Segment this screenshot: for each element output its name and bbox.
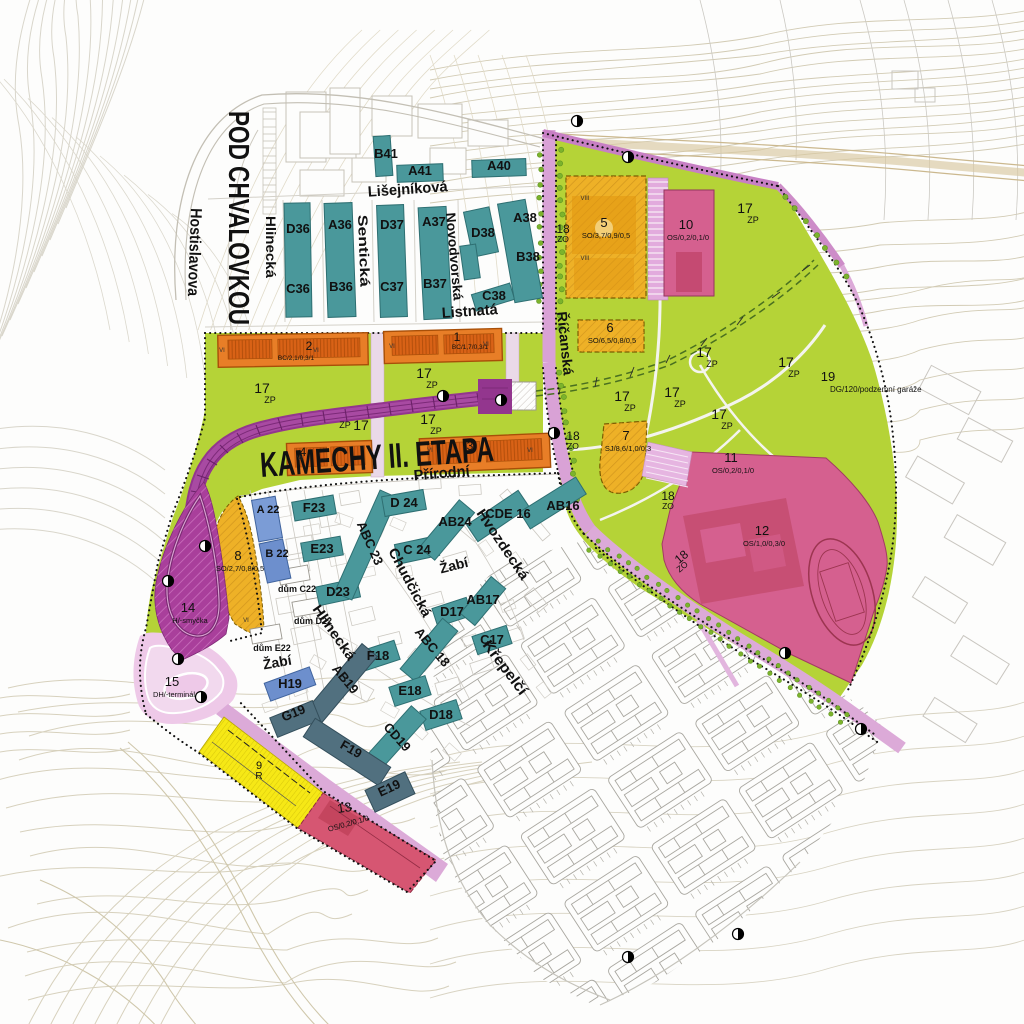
svg-text:dům E22: dům E22: [253, 643, 291, 653]
svg-text:SO/2,7/0,8/0,5: SO/2,7/0,8/0,5: [216, 564, 264, 573]
svg-text:A 22: A 22: [257, 504, 280, 516]
svg-text:F23: F23: [303, 500, 325, 515]
svg-text:C36: C36: [286, 281, 310, 296]
svg-text:14: 14: [181, 600, 195, 615]
svg-text:VI: VI: [219, 348, 225, 354]
svg-text:BC/2,1/0,3/1: BC/2,1/0,3/1: [278, 355, 315, 362]
svg-text:D 24: D 24: [390, 495, 418, 510]
svg-text:8: 8: [234, 548, 241, 563]
svg-text:SO/3,7/0,9/0,5: SO/3,7/0,9/0,5: [582, 231, 630, 240]
svg-text:ZP: ZP: [747, 215, 759, 225]
svg-text:17: 17: [711, 406, 727, 422]
svg-text:17: 17: [254, 380, 270, 396]
svg-text:10: 10: [679, 217, 693, 232]
svg-text:SO/6,5/0,8/0,5: SO/6,5/0,8/0,5: [588, 336, 636, 345]
svg-text:5: 5: [600, 215, 607, 230]
svg-text:17: 17: [416, 365, 432, 381]
svg-text:DG/120/podzemní garáže: DG/120/podzemní garáže: [830, 385, 922, 394]
svg-text:SJ/8,6/1,0/0,3: SJ/8,6/1,0/0,3: [605, 444, 651, 453]
svg-text:6: 6: [606, 320, 613, 335]
svg-text:C17: C17: [480, 632, 504, 647]
svg-text:VI: VI: [389, 344, 395, 350]
svg-text:VIII: VIII: [580, 256, 589, 262]
svg-text:Sentická: Sentická: [355, 215, 373, 288]
svg-text:13: 13: [336, 799, 352, 816]
svg-text:15: 15: [165, 674, 179, 689]
svg-text:ZP: ZP: [264, 395, 276, 405]
svg-text:DH/-terminál: DH/-terminál: [153, 690, 195, 699]
svg-text:CDE 16: CDE 16: [485, 506, 531, 521]
svg-text:R: R: [255, 771, 262, 782]
svg-text:ZP: ZP: [426, 380, 438, 390]
svg-text:ZO: ZO: [567, 441, 579, 451]
svg-text:D17: D17: [440, 604, 464, 619]
svg-text:VI: VI: [297, 456, 303, 462]
svg-text:C37: C37: [380, 279, 404, 294]
svg-text:ZP: ZP: [430, 426, 442, 436]
svg-text:Hlinecká: Hlinecká: [263, 216, 278, 279]
svg-text:H19: H19: [278, 676, 302, 691]
svg-text:VI: VI: [313, 348, 319, 354]
svg-text:B41: B41: [374, 146, 398, 161]
svg-text:VI: VI: [527, 448, 533, 454]
svg-text:A40: A40: [487, 158, 511, 173]
svg-text:B 22: B 22: [265, 548, 288, 560]
svg-text:A37: A37: [422, 214, 446, 229]
svg-text:3: 3: [467, 439, 474, 453]
svg-text:dům D22: dům D22: [294, 616, 332, 626]
svg-text:D36: D36: [286, 221, 310, 236]
svg-text:AB16: AB16: [546, 498, 579, 513]
svg-text:B37: B37: [423, 276, 447, 291]
svg-text:17: 17: [353, 417, 369, 433]
svg-text:17: 17: [737, 200, 753, 216]
svg-text:E23: E23: [310, 541, 333, 556]
svg-text:POD CHVALOVKOU: POD CHVALOVKOU: [222, 111, 254, 325]
svg-text:OS/0,2/0,1/0: OS/0,2/0,1/0: [712, 466, 754, 475]
svg-text:F18: F18: [367, 648, 389, 663]
svg-text:ZP: ZP: [721, 421, 733, 431]
svg-text:17: 17: [420, 411, 436, 427]
svg-text:VIII: VIII: [580, 196, 589, 202]
svg-text:19: 19: [821, 369, 835, 384]
svg-text:ZO: ZO: [557, 234, 569, 244]
svg-text:17: 17: [614, 388, 630, 404]
svg-text:ZP: ZP: [339, 420, 351, 430]
svg-text:E18: E18: [398, 683, 421, 698]
svg-text:11: 11: [724, 450, 738, 465]
svg-text:B36: B36: [329, 279, 353, 294]
svg-text:C38: C38: [482, 288, 506, 303]
svg-text:D18: D18: [429, 707, 453, 722]
svg-text:D37: D37: [380, 217, 404, 232]
svg-text:ZP: ZP: [788, 369, 800, 379]
svg-text:VI: VI: [427, 448, 433, 454]
svg-text:VI: VI: [243, 618, 249, 624]
svg-text:A41: A41: [408, 163, 432, 178]
svg-text:2: 2: [306, 339, 313, 353]
svg-text:17: 17: [696, 344, 712, 360]
svg-text:A38: A38: [513, 210, 537, 225]
svg-text:ZO: ZO: [662, 501, 674, 511]
svg-text:H/-smyčka: H/-smyčka: [172, 616, 208, 625]
svg-text:17: 17: [664, 384, 680, 400]
svg-text:ZP: ZP: [674, 399, 686, 409]
svg-text:A36: A36: [328, 217, 352, 232]
svg-text:VI: VI: [483, 342, 489, 348]
svg-text:B38: B38: [516, 249, 540, 264]
svg-text:ZP: ZP: [706, 359, 718, 369]
svg-text:OS/1,0/0,3/0: OS/1,0/0,3/0: [743, 539, 785, 548]
svg-text:1: 1: [454, 330, 461, 344]
svg-text:17: 17: [778, 354, 794, 370]
svg-text:D23: D23: [326, 584, 350, 599]
svg-text:7: 7: [622, 428, 629, 443]
svg-text:dům C22: dům C22: [278, 584, 316, 594]
svg-text:C 24: C 24: [403, 542, 431, 557]
svg-text:AB17: AB17: [466, 592, 499, 607]
svg-text:D38: D38: [471, 225, 495, 240]
svg-text:Hostislavova: Hostislavova: [184, 208, 204, 297]
svg-text:12: 12: [755, 523, 769, 538]
svg-text:ZP: ZP: [624, 403, 636, 413]
svg-text:OS/0,2/0,1/0: OS/0,2/0,1/0: [667, 233, 709, 242]
svg-text:AB24: AB24: [438, 514, 472, 529]
